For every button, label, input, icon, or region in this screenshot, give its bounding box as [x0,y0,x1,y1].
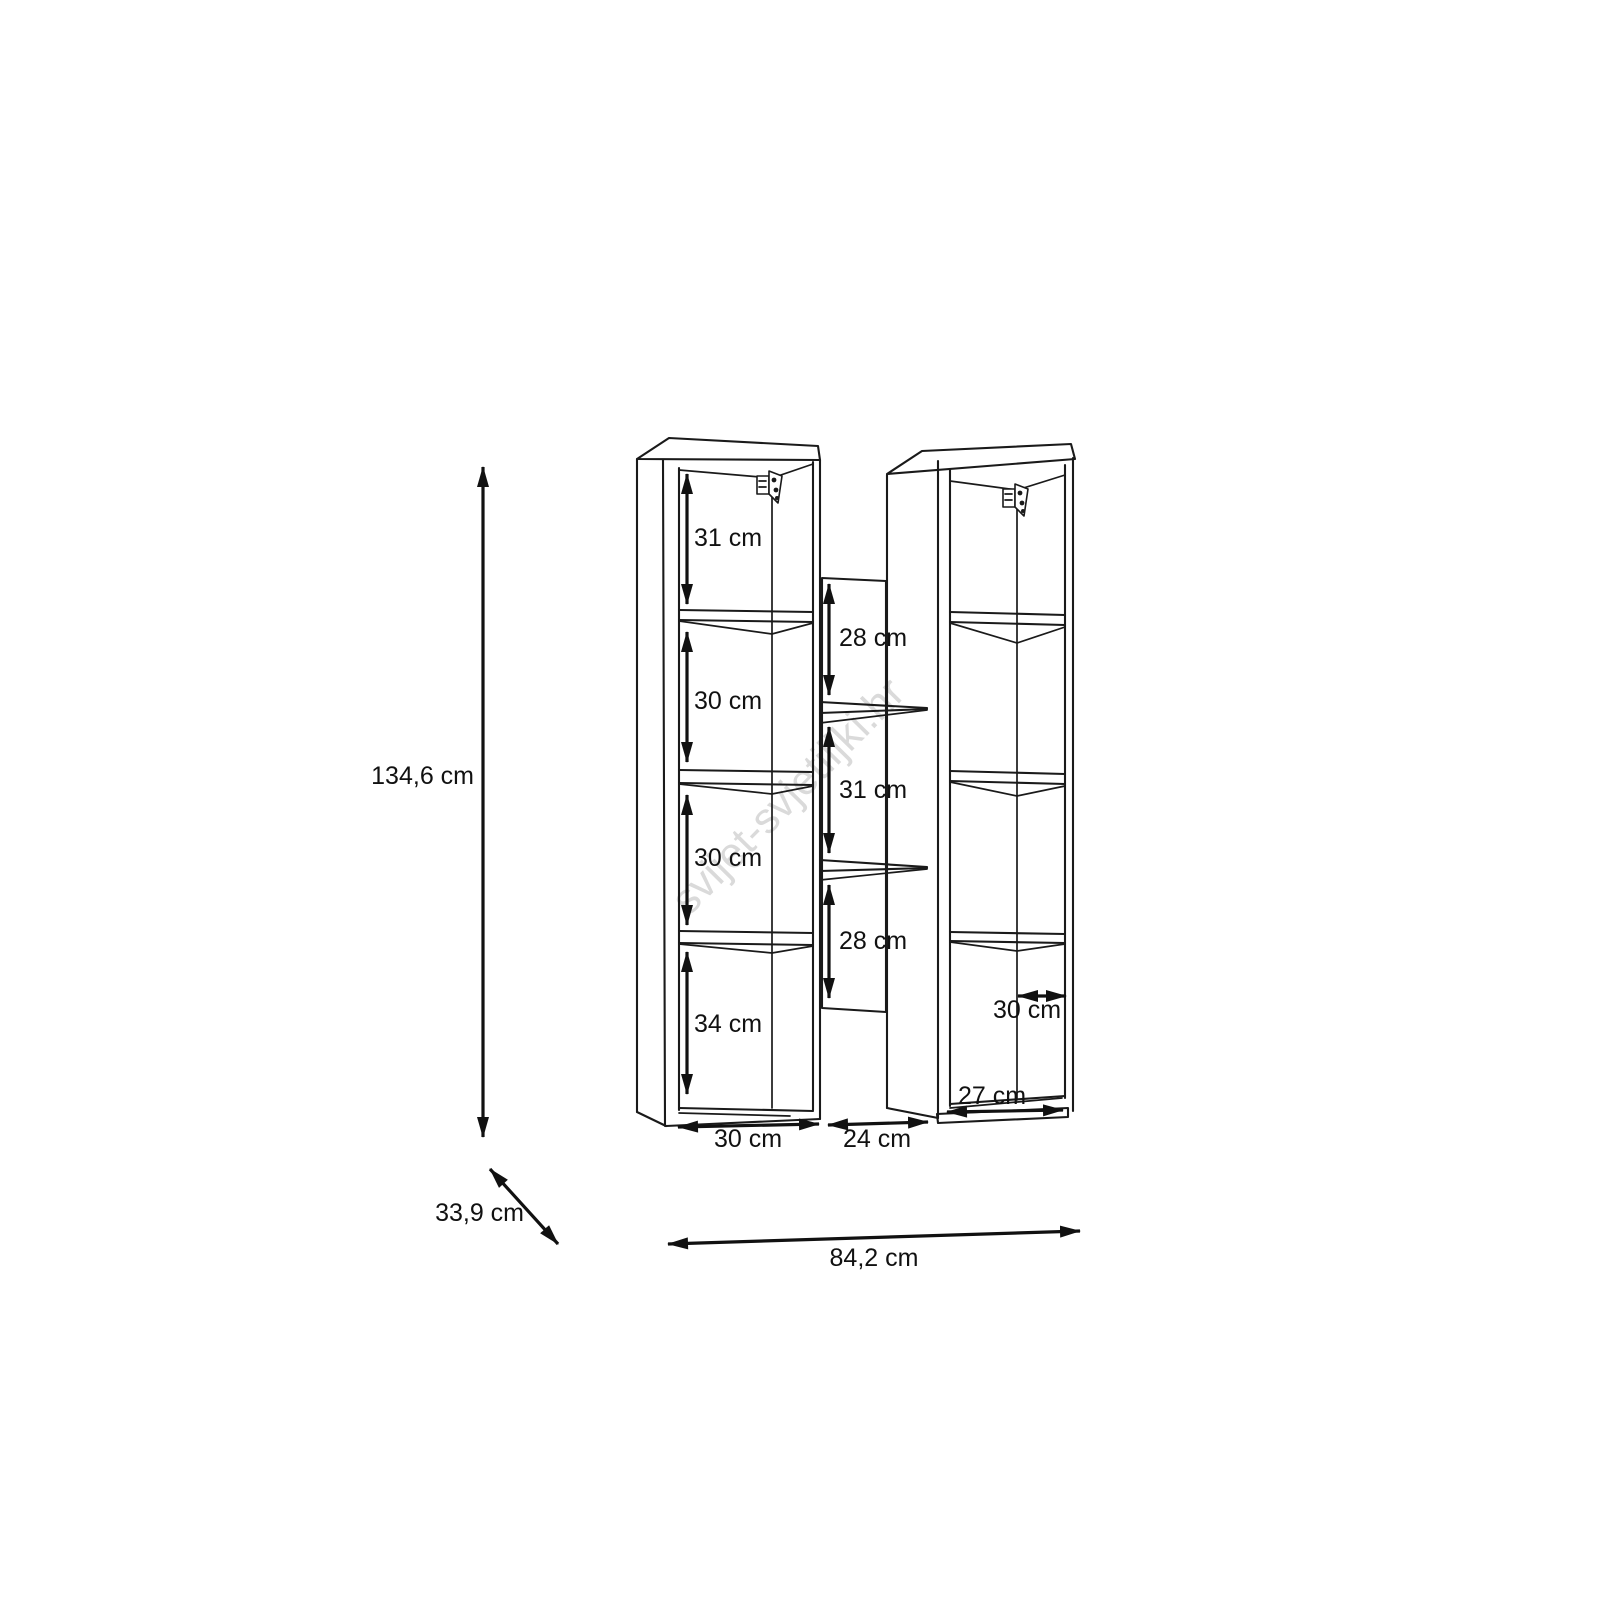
dim-arrow-right-bottom-width [947,1110,1063,1112]
wall-bracket-icon [1003,484,1028,516]
dim-label-right-bottom-width: 27 cm [958,1082,1026,1110]
dimension-annotations: 134,6 cm 31 cm 30 cm 30 cm 34 cm 28 cm 3… [371,467,1080,1272]
dim-label-mid-c3: 28 cm [839,927,907,955]
dim-label-left-c3: 30 cm [694,844,762,872]
right-cabinet-shelf [950,932,1065,951]
right-cabinet-top-panel [887,444,1075,474]
dim-label-right-shelf-width: 30 cm [993,996,1061,1024]
dim-label-mid-c2: 31 cm [839,776,907,804]
dim-label-left-c4: 34 cm [694,1010,762,1038]
furniture-dimension-diagram: svijet-svjetiljki.hr [0,0,1600,1600]
right-cabinet-shelf [950,612,1065,643]
dim-label-left-c2: 30 cm [694,687,762,715]
middle-shelf [820,860,927,880]
diagram-canvas: svijet-svjetiljki.hr [0,0,1600,1600]
dim-label-left-width: 30 cm [714,1125,782,1153]
dim-arrow-total-width [668,1231,1080,1244]
wall-bracket-icon [757,471,782,503]
dim-label-middle-width: 24 cm [843,1125,911,1153]
dim-label-total-height: 134,6 cm [371,762,474,790]
dim-label-mid-c1: 28 cm [839,624,907,652]
dim-label-depth: 33,9 cm [435,1199,524,1227]
dim-label-total-width: 84,2 cm [830,1244,919,1272]
left-cabinet-shelf [679,610,813,634]
left-cabinet-shelf [679,931,813,953]
dim-label-left-c1: 31 cm [694,524,762,552]
right-cabinet-shelf [950,771,1065,796]
left-cabinet-top-panel [637,438,820,460]
